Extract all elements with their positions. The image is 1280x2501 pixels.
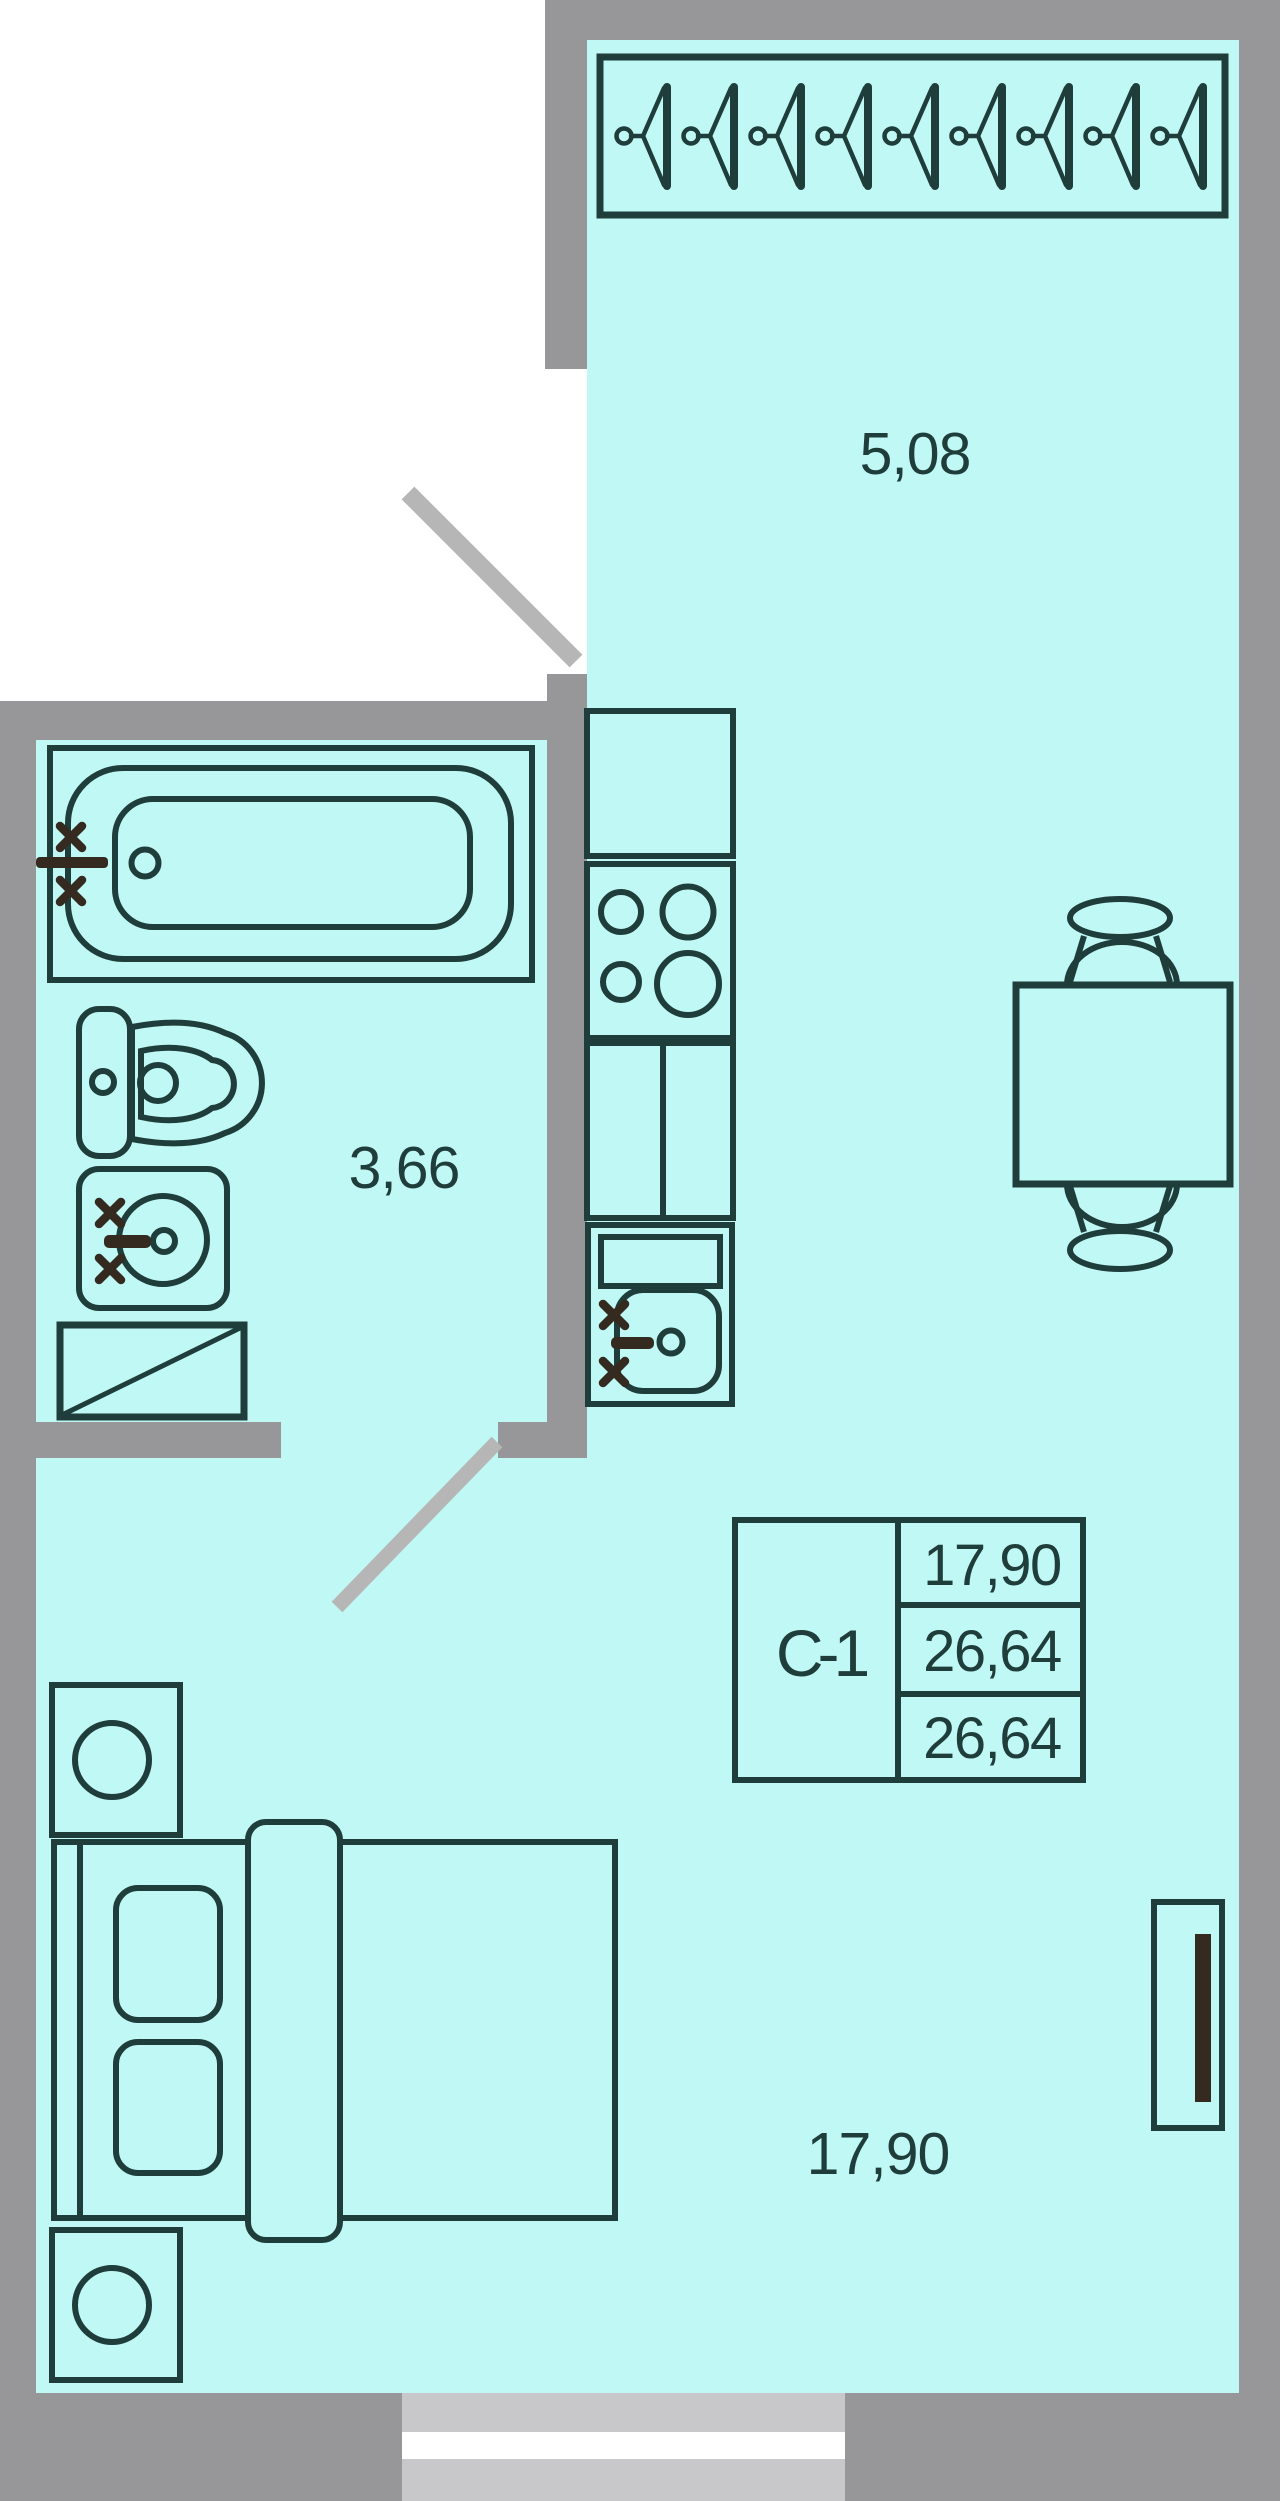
svg-text:26,64: 26,64 [923,1706,1061,1771]
svg-text:26,64: 26,64 [923,1619,1061,1684]
svg-text:3,66: 3,66 [349,1135,460,1201]
svg-text:17,90: 17,90 [807,2121,950,2187]
svg-text:С-1: С-1 [776,1616,868,1690]
svg-text:17,90: 17,90 [923,1533,1061,1598]
svg-text:5,08: 5,08 [860,421,971,487]
